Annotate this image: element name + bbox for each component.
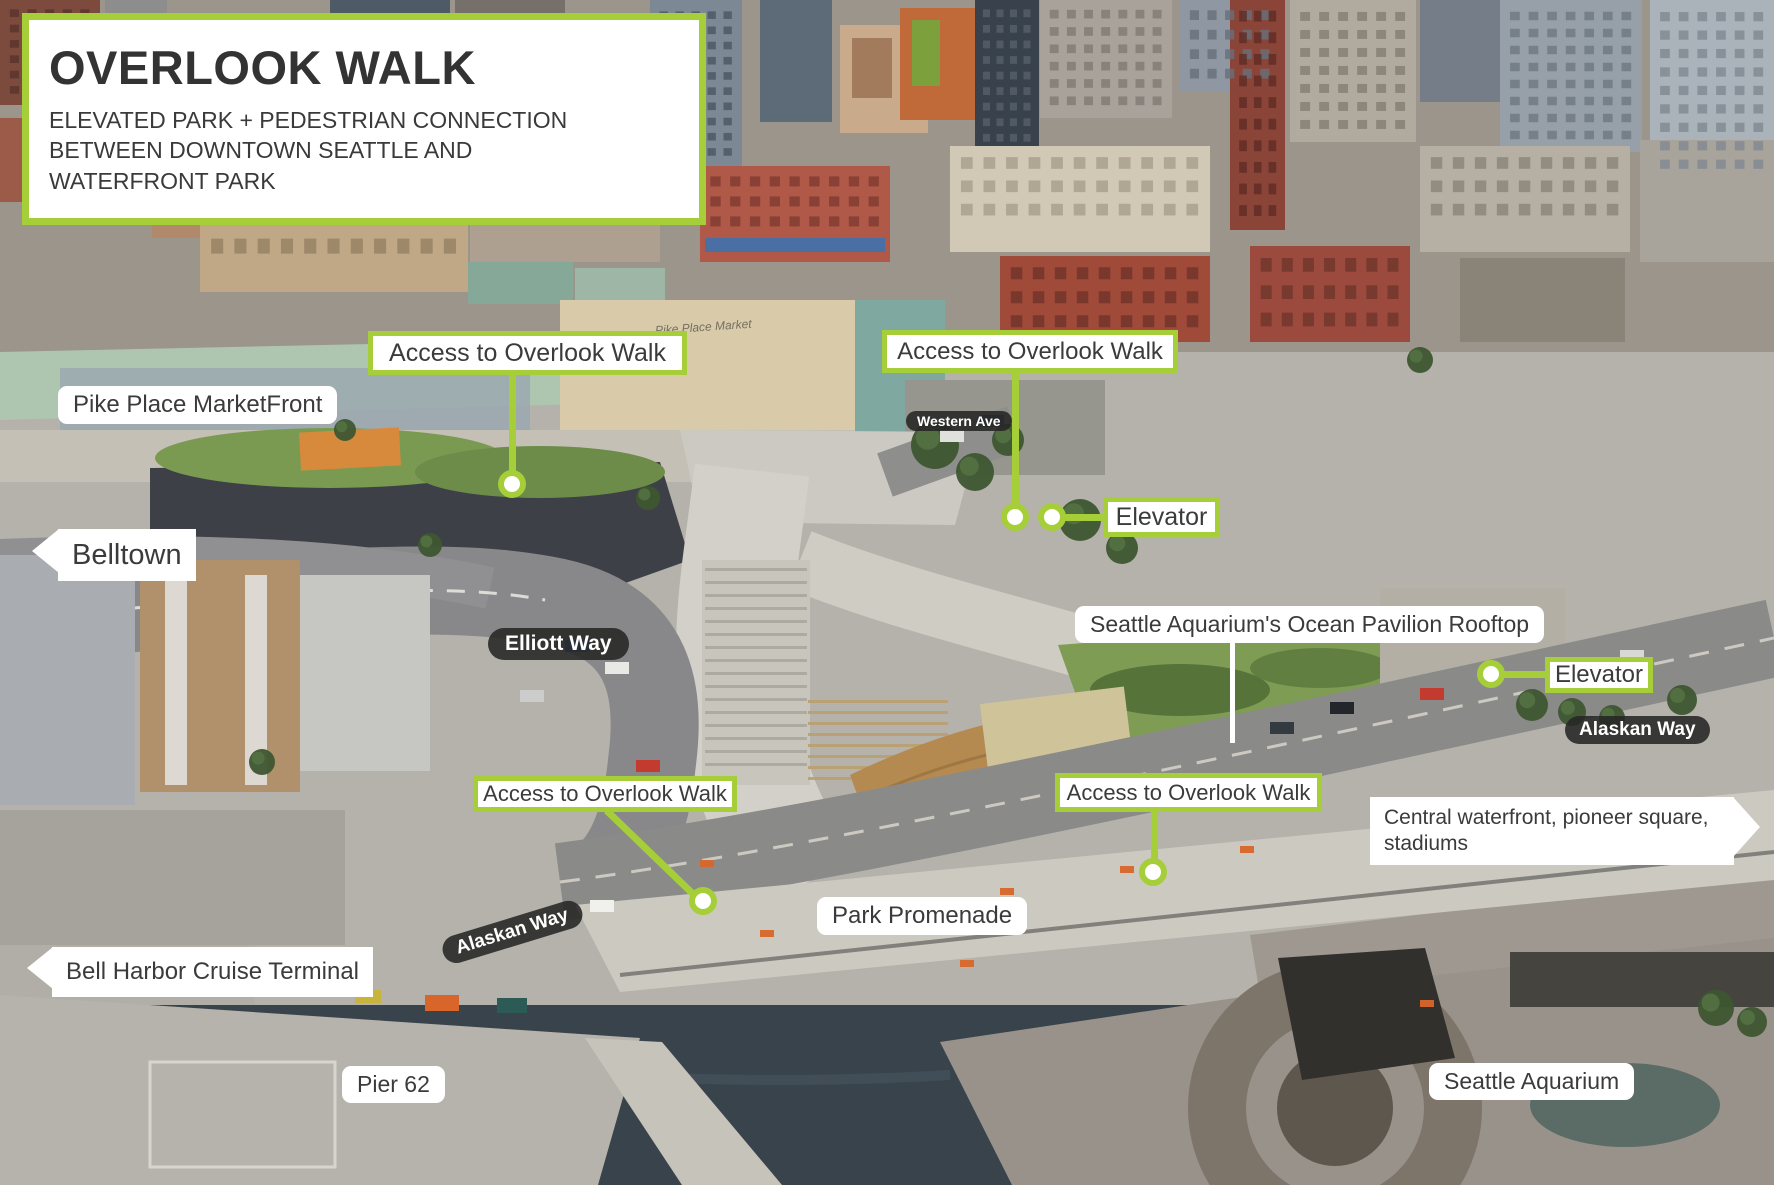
label-ocean-pavilion-rooftop: Seattle Aquarium's Ocean Pavilion Roofto… <box>1075 606 1544 643</box>
marker-dot-access-top-left <box>498 470 526 498</box>
label-bell-harbor-cruise-terminal: Bell Harbor Cruise Terminal <box>52 947 373 997</box>
leader-line-access-top-left <box>509 373 516 475</box>
label-western-ave: Western Ave <box>906 411 1012 431</box>
label-access-overlook-walk-bottom-right: Access to Overlook Walk <box>1055 773 1322 812</box>
label-seattle-aquarium: Seattle Aquarium <box>1429 1063 1634 1100</box>
label-pike-place-marketfront: Pike Place MarketFront <box>58 386 337 424</box>
label-central-waterfront: Central waterfront, pioneer square, stad… <box>1370 797 1734 865</box>
label-pier-62: Pier 62 <box>342 1066 445 1103</box>
label-elevator-west: Elevator <box>1103 497 1220 537</box>
arrow-point-right-icon <box>1733 797 1760 857</box>
label-belltown: Belltown <box>58 529 196 581</box>
marker-dot-elevator-west <box>1038 503 1066 531</box>
label-access-overlook-walk-top-right: Access to Overlook Walk <box>882 330 1178 373</box>
label-access-overlook-walk-top-left: Access to Overlook Walk <box>368 331 687 375</box>
label-alaskan-way-north: Alaskan Way <box>1565 716 1710 744</box>
overlook-walk-infographic: Pike Place Market OVERLOOK WALK ELEVATED… <box>0 0 1774 1185</box>
arrow-point-left-icon <box>27 947 53 989</box>
marker-dot-access-bottom-left <box>689 887 717 915</box>
leader-line-access-top-right <box>1012 371 1019 517</box>
arrow-point-left-icon <box>32 529 59 573</box>
title-card: OVERLOOK WALK ELEVATED PARK + PEDESTRIAN… <box>22 13 706 225</box>
label-elliott-way: Elliott Way <box>488 628 629 660</box>
page-subtitle: ELEVATED PARK + PEDESTRIAN CONNECTION BE… <box>49 105 609 196</box>
label-park-promenade: Park Promenade <box>817 897 1027 935</box>
leader-line-ocean-pavilion <box>1230 641 1235 743</box>
page-title: OVERLOOK WALK <box>49 40 675 95</box>
label-access-overlook-walk-bottom-left: Access to Overlook Walk <box>473 776 737 812</box>
marker-dot-access-bottom-right <box>1139 858 1167 886</box>
marker-dot-access-top-right <box>1001 503 1029 531</box>
label-elevator-east: Elevator <box>1545 657 1653 693</box>
leader-line-access-bottom-right <box>1151 810 1158 862</box>
marker-dot-elevator-east <box>1477 660 1505 688</box>
